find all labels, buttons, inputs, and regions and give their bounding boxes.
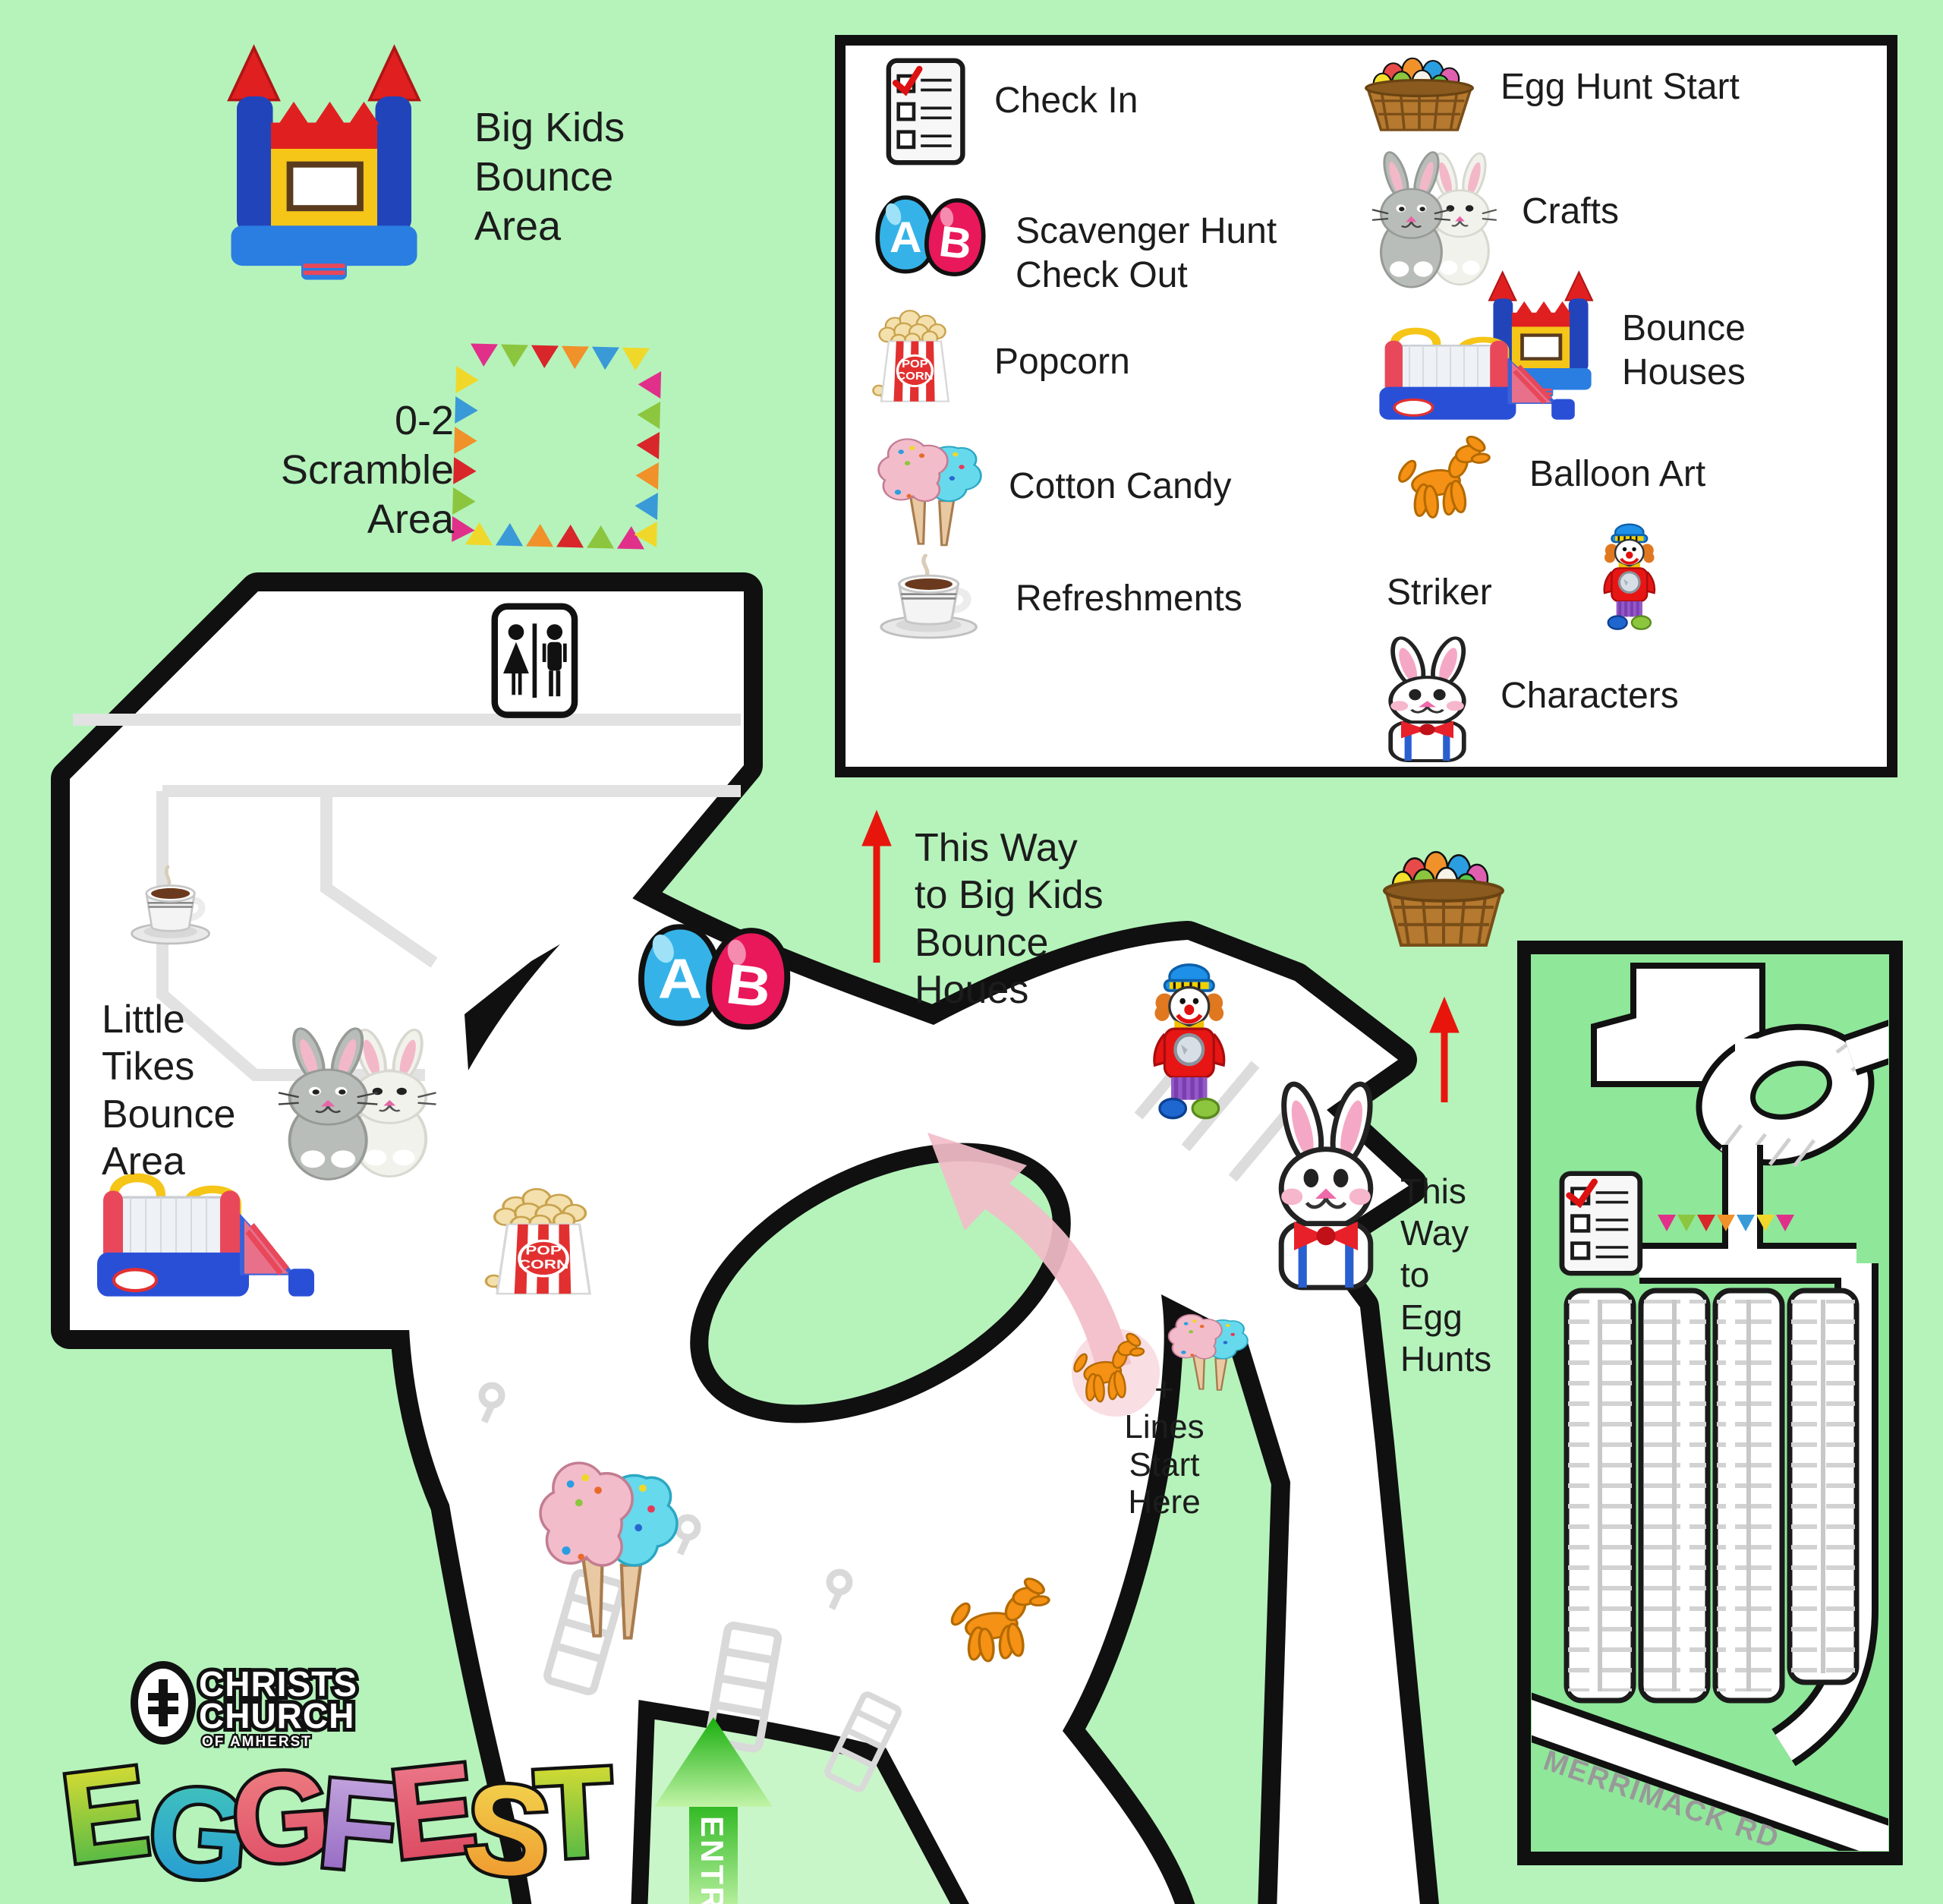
legend-label-characters: Characters [1501, 674, 1679, 718]
restroom-icon [495, 607, 575, 715]
coffee-icon [881, 556, 976, 638]
svg-text:B: B [937, 218, 975, 270]
inset-checkin-icon [1562, 1174, 1640, 1273]
legend-label-popcorn: Popcorn [994, 340, 1130, 384]
scramble-pennant-square [452, 343, 662, 550]
arrow-to-egg-hunts [1430, 998, 1459, 1102]
svg-text:POP: POP [902, 358, 928, 370]
svg-text:A: A [890, 214, 922, 262]
scramble-area-label: 0-2 Scramble Area [255, 396, 454, 544]
big-kids-bounce-icon [229, 48, 419, 280]
checklist-icon [889, 61, 963, 162]
this-way-egg-label: This Way to Egg Hunts [1400, 1171, 1491, 1380]
svg-text:CORN: CORN [896, 370, 933, 383]
legend-label-refreshments: Refreshments [1016, 577, 1242, 621]
little-tikes-label: Little Tikes Bounce Area [102, 996, 235, 1186]
bounce-houses-icon [1379, 272, 1592, 419]
legend-label-striker: Striker [1387, 571, 1492, 615]
entry-label: ENTRY [694, 1816, 730, 1904]
egg-hunt-map-icon [1384, 852, 1503, 945]
svg-text:B: B [723, 951, 775, 1020]
balloon-dog-icon [1396, 434, 1490, 519]
arrow-to-bounce [862, 811, 891, 963]
popcorn-icon: POP CORN [873, 311, 948, 402]
church-name-2: CHURCH [199, 1696, 354, 1735]
svg-text:T: T [532, 1739, 617, 1886]
svg-text:E: E [55, 1739, 156, 1890]
legend-label-cotton-candy: Cotton Candy [1009, 465, 1232, 509]
legend-label-egg-hunt-start: Egg Hunt Start [1501, 65, 1740, 109]
big-kids-bounce-label: Big Kids Bounce Area [474, 103, 625, 251]
eggfest-map-poster: POP CORN A B A B POP CORN [0, 0, 1943, 1904]
overview-inset [1518, 947, 1905, 1858]
svg-text:A: A [658, 947, 703, 1010]
lines-start-label: + Lines Start Here [1102, 1371, 1227, 1521]
legend-label-crafts: Crafts [1522, 190, 1619, 234]
crafts-map-icon [279, 1026, 436, 1179]
legend-label-bounce-houses: Bounce Houses [1622, 307, 1746, 394]
svg-text:POP: POP [525, 1244, 562, 1257]
egg-basket-icon [1366, 58, 1472, 130]
legend-label-check-in: Check In [994, 79, 1138, 123]
this-way-bounce-label: This Way to Big Kids Bounce Houes [915, 824, 1104, 1014]
bunny-crafts-icon [1372, 150, 1497, 287]
bunny-character-icon [1387, 636, 1469, 761]
clown-icon [1604, 525, 1655, 629]
cotton-candy-icon [879, 440, 981, 545]
eggfest-title: E G G F E S T [55, 1735, 617, 1904]
legend-label-balloon-art: Balloon Art [1529, 452, 1705, 496]
svg-text:CORN: CORN [518, 1258, 568, 1272]
ab-eggs-icon: A B [877, 197, 988, 278]
legend-label-scavenger: Scavenger Hunt Check Out [1016, 210, 1277, 297]
